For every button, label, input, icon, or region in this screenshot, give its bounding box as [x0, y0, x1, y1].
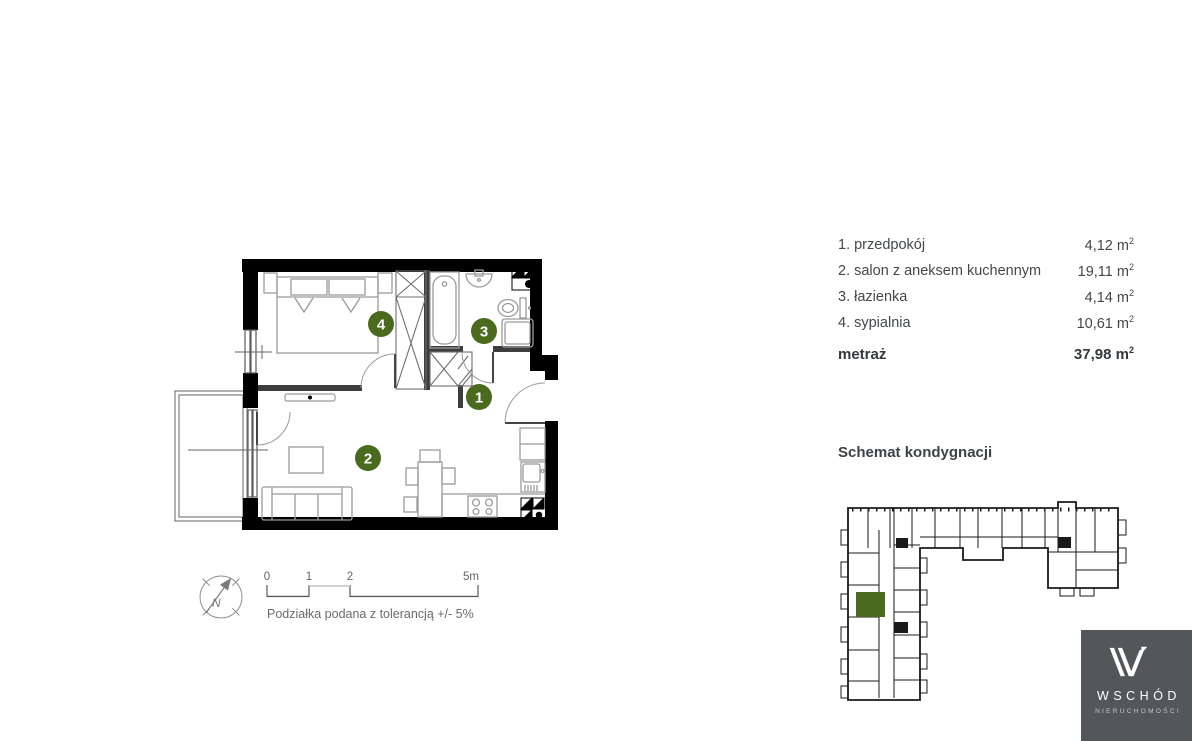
vent-shaft-kitchen: [521, 498, 544, 521]
room-number-1: 1: [475, 390, 483, 407]
legend-label: 3. łazienka: [838, 289, 907, 305]
wschod-w-icon: [1102, 641, 1150, 683]
legend-label: 1. przedpokój: [838, 237, 925, 253]
total-label: metraż: [838, 346, 886, 363]
bedroom-door: [361, 354, 395, 388]
room-legend: 1. przedpokój 4,12 m2 2. salon z aneksem…: [838, 232, 1134, 367]
legend-area: 10,61 m2: [1077, 314, 1134, 332]
compass-and-scalebar: N 0 1 2 5m Podziałka podana z tolerancją…: [190, 565, 490, 640]
room-number-2: 2: [364, 451, 372, 468]
floorplan-page: 4 3 1 2 N 0 1 2 5m Podziałka podana z to…: [0, 0, 1192, 741]
legend-row-salon: 2. salon z aneksem kuchennym 19,11 m2: [838, 258, 1134, 284]
legend-total-row: metraż 37,98 m2: [838, 341, 1134, 367]
logo-subtitle: NIERUCHOMOŚCI: [1081, 708, 1192, 715]
washing-machine: [502, 319, 533, 347]
bathtub: [430, 272, 459, 348]
scale-tick-1: 1: [306, 571, 312, 583]
building-outline: [848, 502, 1118, 700]
scale-tick-0: 0: [264, 571, 270, 583]
logo-name: WSCHÓD: [1081, 689, 1192, 703]
building-units: [848, 508, 1118, 698]
coffee-table: [289, 447, 323, 473]
apartment-floorplan: 4 3 1 2: [165, 250, 570, 540]
sofa: [262, 487, 352, 520]
logo-wschod: WSCHÓD NIERUCHOMOŚCI: [1081, 630, 1192, 741]
wardrobe: [396, 271, 426, 389]
legend-area: 19,11 m2: [1078, 262, 1134, 280]
scale-tick-5m: 5m: [463, 571, 479, 583]
legend-row-lazienka: 3. łazienka 4,14 m2: [838, 284, 1134, 310]
scale-tolerance-caption: Podziałka podana z tolerancją +/- 5%: [267, 607, 474, 621]
legend-row-sypialnia: 4. sypialnia 10,61 m2: [838, 310, 1134, 336]
total-area: 37,98 m2: [1074, 345, 1134, 363]
legend-area: 4,14 m2: [1085, 288, 1134, 306]
bathroom-sink: [466, 270, 492, 287]
stove: [468, 496, 497, 517]
balcony: [175, 391, 247, 521]
axis-markers: [188, 345, 272, 457]
highlighted-unit: [856, 592, 885, 617]
room-number-3: 3: [480, 324, 488, 341]
compass-icon: N: [200, 576, 242, 618]
bathroom-door: [462, 352, 493, 383]
toilet: [498, 298, 531, 318]
scale-tick-2: 2: [347, 571, 353, 583]
room-number-4: 4: [377, 317, 386, 334]
legend-area: 4,12 m2: [1085, 236, 1134, 254]
tv-cabinet: [285, 394, 335, 401]
compass-north-label: N: [212, 596, 221, 610]
bed: [264, 273, 392, 353]
schematic-title: Schemat kondygnacji: [838, 444, 992, 461]
legend-row-przedpokoj: 1. przedpokój 4,12 m2: [838, 232, 1134, 258]
hall-wardrobe: [430, 352, 472, 386]
scale-bar: 0 1 2 5m Podziałka podana z tolerancją +…: [264, 571, 479, 621]
legend-label: 4. sypialnia: [838, 315, 911, 331]
dining-set: [404, 450, 455, 517]
balcony-door: [248, 410, 290, 497]
legend-label: 2. salon z aneksem kuchennym: [838, 263, 1041, 279]
entrance-door: [505, 383, 545, 423]
